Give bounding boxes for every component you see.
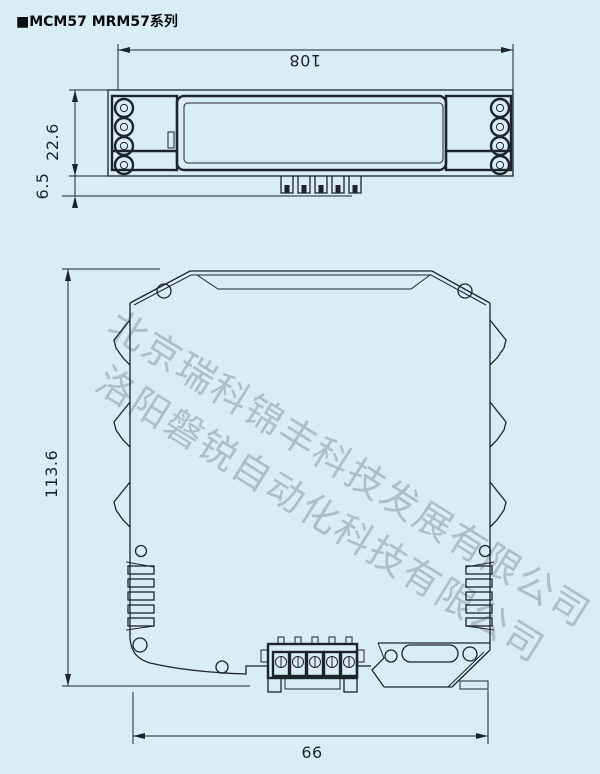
left-terminal-screws [115,99,133,174]
dim-pin-height: 6.5 [33,173,52,200]
left-terminal-block [112,96,177,170]
top-view-dimensions: 108 22.6 6.5 [33,44,513,208]
center-housing [177,96,446,170]
terminal-screw-cells [273,652,357,676]
dim-front-width: 66 [301,743,322,762]
page-title: ■MCM57 MRM57系列 [16,13,178,30]
arrowhead [65,674,71,686]
slider-bar [128,605,154,613]
front-top-recess [197,275,430,289]
right-terminal-block [446,96,511,170]
terminal-screw-center [496,142,503,149]
bottom-hole [216,661,228,673]
terminal-base [285,678,340,689]
center-housing-inner [184,103,443,163]
slider-bar [128,618,154,626]
foot-diagonal-inner [448,652,484,687]
watermark-company-1: 北京瑞科锦丰科技发展有限公司 [100,302,598,636]
arrowhead [133,733,145,739]
din-rail-foot [357,643,490,689]
arrowhead [72,164,78,176]
terminal-screw [115,99,133,117]
terminal-leg [268,678,281,692]
dim-front-height: 113.6 [42,450,61,498]
pin-contact [302,185,307,193]
pin-contact [336,185,341,193]
connector-pins [281,176,361,193]
bottom-left-curve [130,638,268,674]
foot-hole [385,650,397,662]
right-clips [490,320,506,527]
top-view [108,90,513,193]
arrowhead [72,90,78,102]
right-terminal-screws [491,99,509,174]
technical-drawing: ■MCM57 MRM57系列 北京瑞科锦丰科技发展有限公司 洛阳磐锐自动化科技有… [0,0,600,774]
terminal-screw-center [120,142,127,149]
terminal-screw [491,137,509,155]
terminal-screw-center [496,104,503,111]
left-block-tab [168,132,174,148]
watermark-company-2: 洛阳磐锐自动化科技有限公司 [88,358,552,671]
terminal-screw [115,156,133,174]
terminal-screw-center [496,161,503,168]
spring-clip [490,482,506,527]
terminal-screw-center [120,161,127,168]
terminal-screw [115,137,133,155]
foot-slot [402,645,458,662]
spring-clip [490,320,506,365]
spring-clip [114,482,130,527]
foot-chevron [372,658,384,687]
foot-hole [463,647,477,661]
terminal-screw [491,99,509,117]
dim-top-height: 22.6 [43,123,62,161]
side-hole [136,546,147,557]
arrowhead [118,47,130,53]
front-top-edge [130,271,490,303]
arrowhead [501,47,513,53]
corner-hole [157,284,171,298]
arrowhead [72,196,78,208]
slider-bar [128,566,154,574]
bottom-left-hole [133,638,147,652]
watermark-layer: 北京瑞科锦丰科技发展有限公司 洛阳磐锐自动化科技有限公司 [88,302,598,671]
terminal-screw [491,156,509,174]
arrowhead [476,733,488,739]
foot-band-left [378,643,384,658]
slider-bar [128,592,154,600]
pin-contact [319,185,324,193]
dim-top-width: 108 [289,51,321,70]
terminal-screw-center [120,104,127,111]
terminal-screw [491,118,509,136]
terminal-screw-center [120,123,127,130]
terminal-leg [344,678,357,692]
terminal-screw-center [496,123,503,130]
terminal-screw [115,118,133,136]
front-terminal-block [261,637,364,692]
front-top-edge-inner [134,275,486,305]
spring-clip [490,402,506,447]
pin-contact [285,185,290,193]
foot-notch [460,681,488,689]
arrowhead [65,269,71,281]
pin-contact [353,185,358,193]
slider-bar [128,579,154,587]
